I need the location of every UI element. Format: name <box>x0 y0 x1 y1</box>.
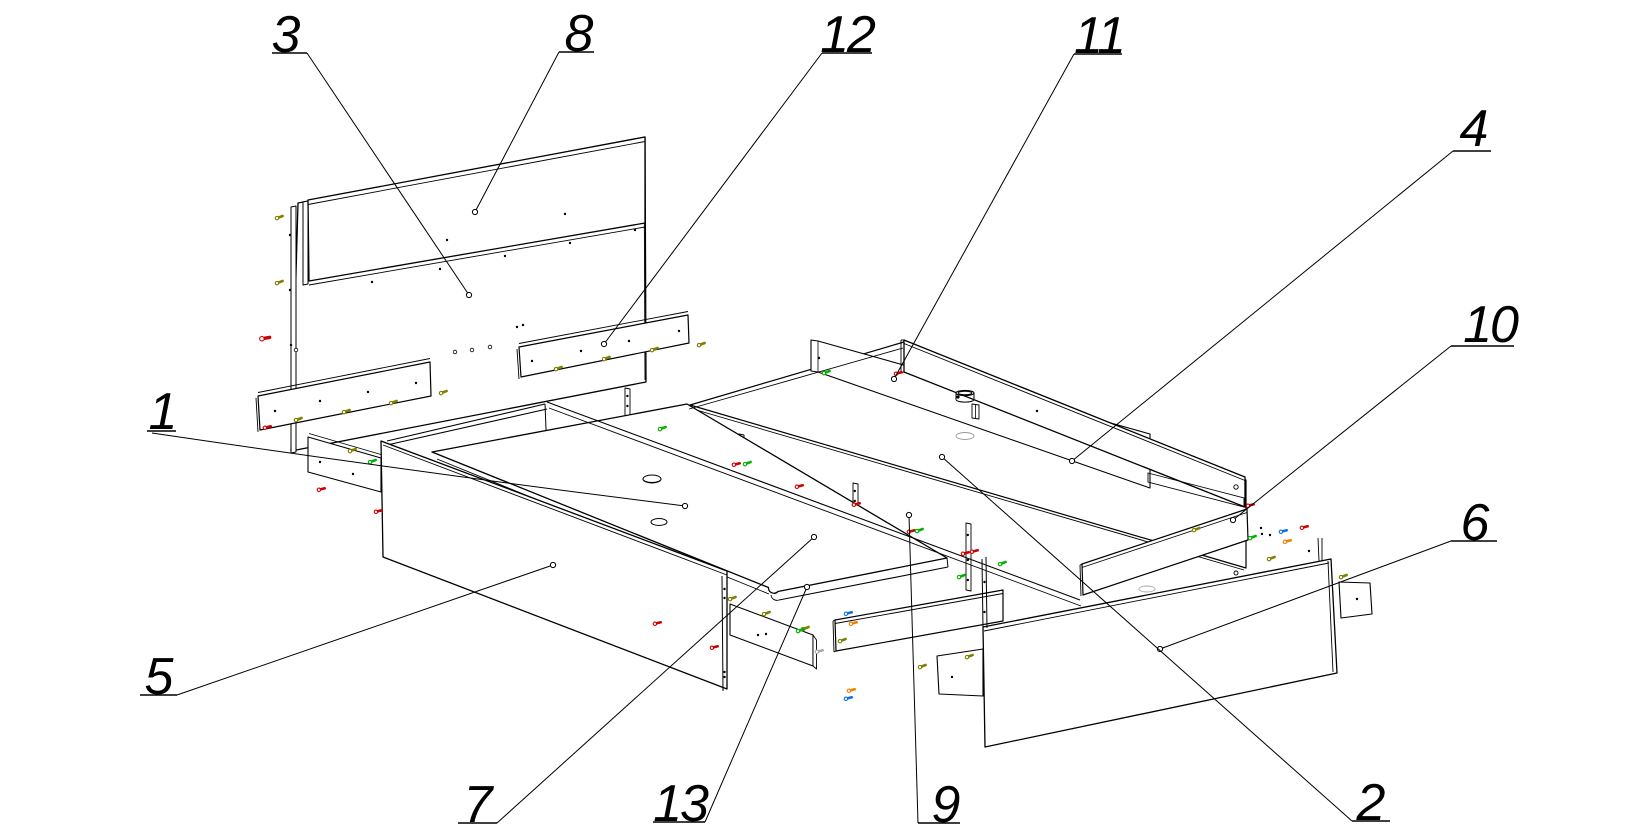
svg-text:5: 5 <box>145 648 175 706</box>
svg-text:12: 12 <box>820 6 876 64</box>
svg-text:4: 4 <box>1460 100 1487 158</box>
svg-text:7: 7 <box>464 776 495 834</box>
svg-text:2: 2 <box>1356 774 1386 832</box>
svg-text:11: 11 <box>1074 7 1124 65</box>
svg-text:3: 3 <box>272 6 301 64</box>
svg-text:13: 13 <box>653 775 709 833</box>
svg-text:6: 6 <box>1461 494 1490 552</box>
svg-text:9: 9 <box>932 776 960 834</box>
svg-text:8: 8 <box>565 5 594 63</box>
svg-text:1: 1 <box>149 383 176 441</box>
